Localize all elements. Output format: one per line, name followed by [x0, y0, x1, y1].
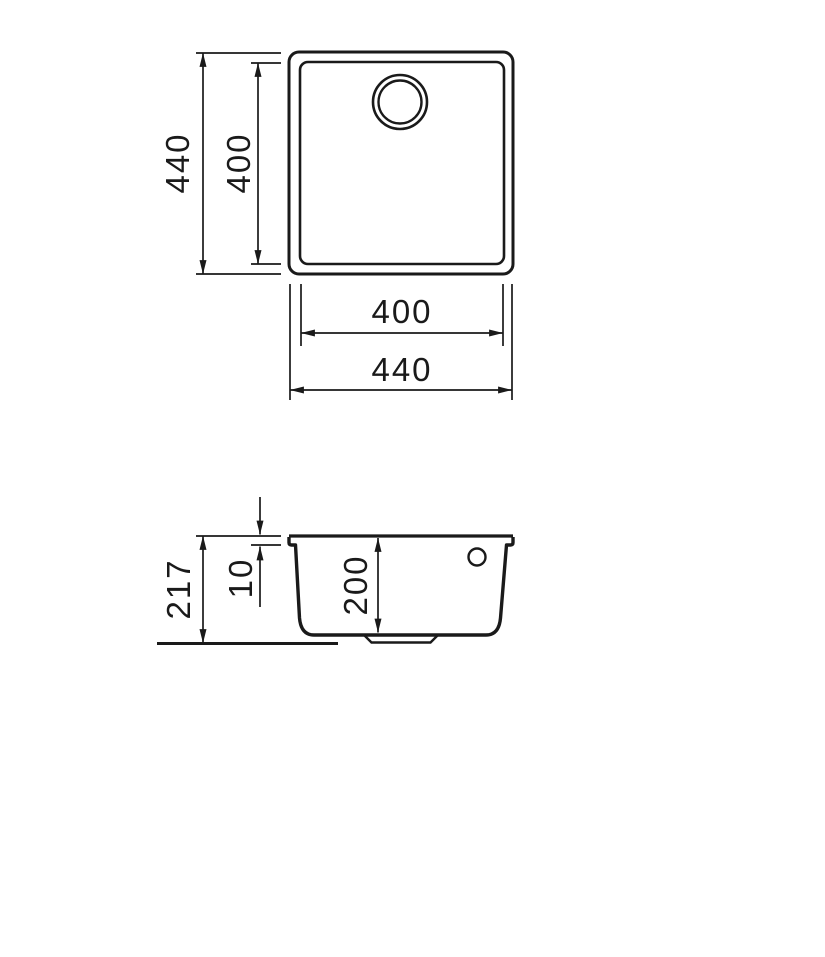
bowl-inner-outline — [300, 62, 504, 264]
dim-label-outer-height: 440 — [159, 132, 196, 193]
dim-bowl-depth: 200 — [337, 538, 378, 633]
sink-technical-drawing: 440 400 400 440 — [0, 0, 825, 957]
dim-overall-height: 217 — [160, 536, 281, 643]
dim-label-bowl-depth: 200 — [337, 554, 374, 615]
dim-inner-height: 400 — [220, 63, 281, 264]
dim-label-inner-width: 400 — [371, 293, 432, 330]
section-view: 217 10 200 — [157, 497, 513, 644]
dim-label-overall-height: 217 — [160, 558, 197, 619]
drawing-page: 440 400 400 440 — [0, 0, 825, 957]
dim-label-inner-height: 400 — [220, 132, 257, 193]
dim-rim-height: 10 — [222, 497, 281, 607]
top-view: 440 400 400 440 — [159, 52, 513, 400]
dim-label-outer-width: 440 — [371, 351, 432, 388]
overflow-hole — [469, 549, 486, 566]
bowl-section-outline — [289, 537, 513, 635]
drain-outer-circle — [373, 75, 427, 129]
sink-outer-outline — [289, 52, 513, 274]
dim-inner-width: 400 — [301, 284, 503, 346]
dim-label-rim-height: 10 — [222, 558, 259, 599]
drain-inner-circle — [379, 81, 422, 124]
